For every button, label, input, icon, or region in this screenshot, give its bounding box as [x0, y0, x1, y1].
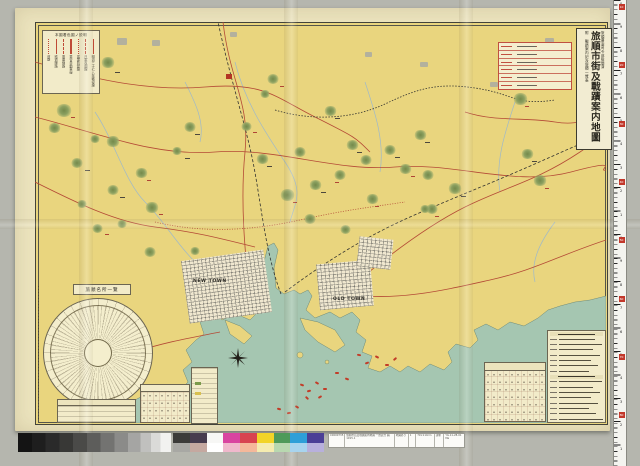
list-row-text: [559, 349, 593, 350]
ruler-digit: 4: [620, 143, 622, 147]
list-table-row: [550, 359, 603, 363]
ruler-digit: 1: [620, 214, 622, 218]
distance-row-value: [517, 77, 537, 78]
legend-item: 明治三十七八年戰役線: [90, 39, 96, 91]
distance-table-row: [499, 82, 571, 89]
distance-row-value: [517, 62, 537, 63]
distance-table: [498, 42, 572, 90]
list-row-text: [558, 334, 595, 335]
color-patch: [173, 443, 190, 453]
field-symbol-chip: [195, 392, 201, 395]
forest-symbol-chip: [195, 382, 201, 385]
color-legend: 本圖着色圖ノ説明 明治三十七八年戰役線日軍攻圍線露軍防禦線乘合自動車線電車線路鐵…: [42, 30, 100, 94]
legend-line-symbol: [56, 39, 57, 54]
legend-items: 明治三十七八年戰役線日軍攻圍線露軍防禦線乘合自動車線電車線路鐵道線路道路: [45, 39, 97, 91]
color-patch-row-top: [173, 433, 324, 443]
ruler-digit: 2: [620, 424, 622, 428]
list-row-text: [559, 381, 602, 382]
ruler-digit: 2: [620, 190, 622, 194]
catalog-label-cell: 請求: [435, 434, 445, 447]
catalog-label-cell: YG.11-28-01 Ma: [444, 434, 464, 447]
catalog-label-cell: 旅順市街及戰蹟案内地圖 一覽表含 圖, 1915.1: [345, 434, 394, 447]
ruler-red-mark: 40: [619, 179, 625, 185]
ruler-digit: 7: [620, 73, 622, 77]
list-row-text: [559, 403, 598, 404]
list-row-number: [550, 349, 557, 350]
legend-item: 日軍攻圍線: [83, 39, 89, 91]
list-row-number: [550, 371, 557, 372]
wheel-header-text: 旅順名所一覽: [86, 287, 119, 293]
list-table-row: [550, 369, 603, 373]
distance-row-value: [517, 85, 537, 86]
wheel-header-box: 旅順名所一覽: [73, 284, 131, 295]
list-row-number: [550, 408, 557, 409]
color-patch: [240, 433, 257, 443]
distance-row-label: [501, 54, 512, 55]
list-table-row: [550, 406, 603, 410]
ruler-red-mark: 70: [619, 354, 625, 360]
color-patch: [307, 443, 324, 453]
list-table-row: [550, 380, 603, 384]
distance-table-row: [499, 59, 571, 67]
legend-item-label: 露軍防禦線: [76, 55, 81, 71]
color-patch: [257, 443, 274, 453]
list-table-row: [550, 337, 603, 341]
ruler-digit: 3: [620, 401, 622, 405]
color-patch: [240, 443, 257, 453]
list-row-number: [550, 403, 557, 404]
title-block: 旅順要塞司令部檢閲濟 旅順市街及戰蹟案内地圖 附 戰蹟案内記及旅順一覽表: [576, 28, 612, 150]
color-patch: [274, 443, 291, 453]
abbreviation-grid-table: [484, 362, 546, 422]
abbreviation-grid-header: [485, 363, 545, 371]
color-calibration-patches: [173, 433, 324, 452]
color-patch: [190, 443, 207, 453]
legend-item-label: 明治三十七八年戰役線: [91, 55, 96, 87]
ruler-digit: 8: [620, 284, 622, 288]
color-patch: [290, 443, 307, 453]
ruler-red-mark: 10: [619, 4, 625, 10]
list-row-text: [559, 408, 589, 409]
list-row-number: [550, 397, 557, 398]
distance-row-label: [501, 46, 512, 47]
wheel-caption-table: [57, 399, 136, 423]
list-table-row: [550, 348, 603, 352]
list-row-text: [559, 360, 591, 361]
list-row-text: [559, 365, 598, 366]
ruler-digit: 6: [620, 331, 622, 335]
scanner-ruler: 098765432109876543211020304050607080: [613, 0, 627, 466]
symbols-legend-header: [141, 385, 189, 392]
legend-line-symbol: [70, 39, 72, 54]
list-row-text: [559, 355, 600, 356]
list-row-number: [550, 419, 557, 420]
color-patch: [290, 433, 307, 443]
distance-table-row: [499, 66, 571, 74]
list-row-text: [558, 376, 595, 377]
list-section-header: [550, 332, 603, 336]
color-patch: [207, 443, 224, 453]
list-row-text: [559, 371, 589, 372]
list-table-row: [550, 390, 603, 394]
list-row-text: [559, 344, 602, 345]
color-patch: [173, 433, 190, 443]
grayscale-calibration-strip: [18, 433, 171, 452]
catalog-label: C0000735旅順市街及戰蹟案内地圖 一覽表含 圖, 1915.1地圖あり17…: [328, 433, 465, 448]
map-subtitle: 附 戰蹟案内記及旅順一覽表: [585, 31, 589, 147]
ruler-digit: 4: [620, 377, 622, 381]
color-patch-row-bottom: [173, 443, 324, 453]
catalog-label-cell: 79×110cm: [416, 434, 434, 447]
list-row-number: [550, 413, 557, 414]
symbols-legend-cells: [141, 392, 189, 423]
sites-list-table: [547, 330, 606, 423]
approval-stamp-text: 旅順要塞司令部檢閲濟: [600, 31, 603, 147]
sites-wheel-diagram: [43, 298, 153, 408]
legend-item: 電車線路: [61, 39, 67, 91]
list-row-text: [559, 392, 600, 393]
symbols-legend-wide: [140, 384, 190, 423]
list-row-number: [550, 392, 557, 393]
distance-table-row: [499, 43, 571, 51]
ruler-digit: 3: [620, 167, 622, 171]
list-row-number: [550, 339, 557, 340]
legend-line-symbol: [78, 39, 79, 54]
list-row-number: [550, 360, 557, 361]
distance-row-value: [517, 69, 537, 70]
list-table-row: [550, 385, 603, 389]
distance-table-row: [499, 74, 571, 82]
legend-line-symbol: [48, 39, 49, 54]
islet-small: [325, 360, 329, 364]
ruler-digit: 6: [620, 97, 622, 101]
list-table-row: [550, 417, 603, 421]
list-table-row: [550, 353, 603, 357]
ruler-digit: 1: [620, 448, 622, 452]
legend-line-symbol: [85, 39, 86, 54]
distance-table-row: [499, 51, 571, 59]
list-table-row: [550, 364, 603, 368]
legend-item-label: 道路: [46, 55, 51, 61]
legend-item-label: 鐵道線路: [54, 55, 59, 68]
list-row-number: [550, 355, 557, 356]
list-row-number: [550, 381, 557, 382]
list-row-text: [559, 413, 596, 414]
catalog-label-cell: 地圖あり: [395, 434, 409, 447]
legend-item: 道路: [46, 39, 52, 91]
color-patch: [223, 433, 240, 443]
list-table-row: [550, 396, 603, 400]
color-patch: [274, 433, 291, 443]
color-patch: [223, 443, 240, 453]
distance-row-label: [501, 77, 512, 78]
terrain-legend-tall: [191, 367, 218, 424]
list-row-number: [550, 365, 557, 366]
distance-row-label: [501, 85, 512, 86]
abbreviation-grid-cells: [485, 371, 545, 422]
legend-item: 露軍防禦線: [75, 39, 81, 91]
color-patch: [190, 433, 207, 443]
wheel-caption-rows: [58, 406, 135, 423]
color-patch: [257, 433, 274, 443]
list-row-text: [559, 339, 595, 340]
ruler-red-mark: 30: [619, 121, 625, 127]
list-row-text: [559, 387, 593, 388]
list-row-number: [550, 344, 557, 345]
ruler-digit: 9: [620, 26, 622, 30]
ruler-digit: 7: [620, 307, 622, 311]
list-row-number: [550, 387, 557, 388]
compass-rose-icon: [228, 348, 248, 368]
streams: [95, 62, 555, 282]
catalog-label-cell: 1: [409, 434, 416, 447]
list-row-text: [559, 419, 603, 420]
distance-row-value: [517, 46, 537, 47]
distance-row-value: [517, 54, 537, 55]
list-table-row: [550, 401, 603, 405]
distance-row-label: [501, 62, 512, 63]
legend-item-label: 日軍攻圍線: [83, 55, 88, 71]
ruler-red-mark: 60: [619, 296, 625, 302]
legend-item: 鐵道線路: [53, 39, 59, 91]
islet: [297, 352, 303, 358]
color-patch: [207, 433, 224, 443]
legend-line-symbol: [93, 39, 94, 54]
legend-item: 乘合自動車線: [68, 39, 74, 91]
legend-item-label: 電車線路: [61, 55, 66, 68]
list-table-row: [550, 412, 603, 416]
margin-notes-column: [36, 286, 44, 420]
legend-item-label: 乘合自動車線: [68, 55, 73, 74]
catalog-label-cell: C0000735: [329, 434, 345, 447]
list-section-header: [550, 375, 603, 379]
scanned-map-sheet: NEW TOWN OLD TOWN 旅順要塞司令部檢閲濟 旅順市街及戰蹟案内地圖…: [0, 0, 640, 466]
ruler-red-mark: 80: [619, 412, 625, 418]
ruler-digit: 8: [620, 50, 622, 54]
list-row-text: [559, 397, 591, 398]
map-title: 旅順市街及戰蹟案内地圖: [589, 31, 599, 147]
legend-line-symbol: [63, 39, 64, 54]
ruler-digit: 9: [620, 260, 622, 264]
distance-row-label: [501, 69, 512, 70]
color-patch: [307, 433, 324, 443]
ruler-red-mark: 50: [619, 237, 625, 243]
ruler-red-mark: 20: [619, 62, 625, 68]
list-table-row: [550, 343, 603, 347]
